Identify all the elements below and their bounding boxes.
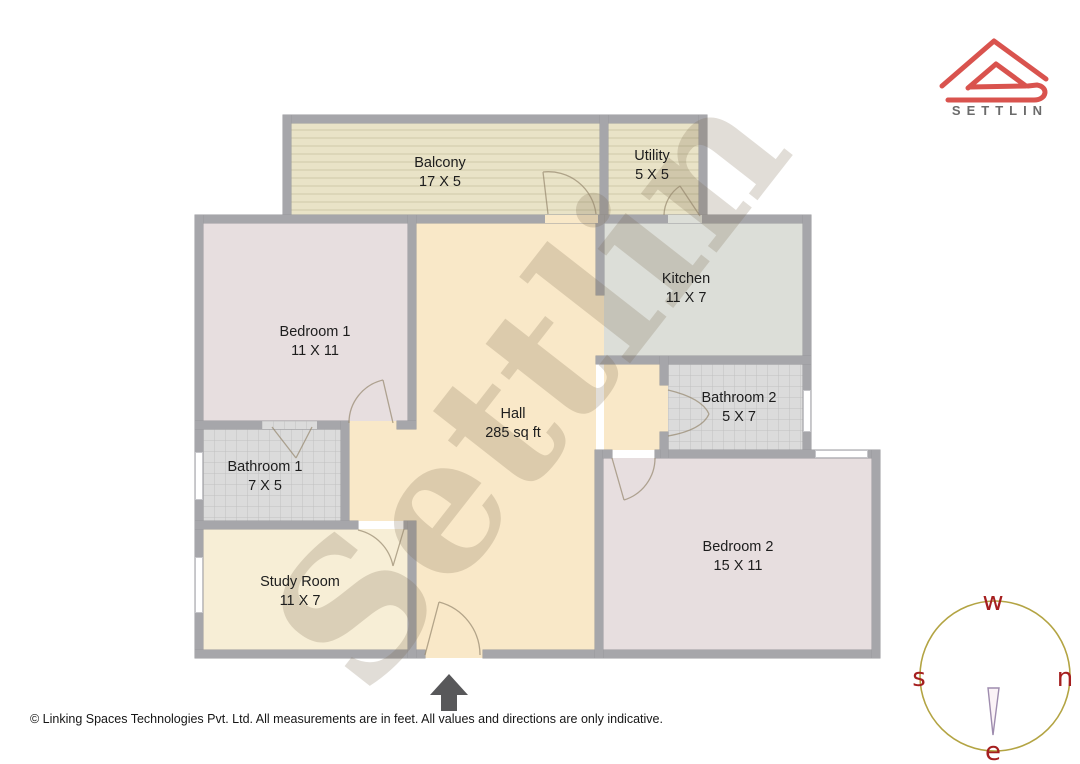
label-bedroom1: Bedroom 1 11 X 11 [280,323,351,361]
compass-west: w [982,588,1003,617]
window-marker [195,557,203,613]
wall-segment [699,115,707,223]
window-marker [803,390,811,432]
wall-segment [283,115,707,123]
door-opening-utility-kitchen [668,215,702,223]
label-study: Study Room 11 X 7 [260,573,340,611]
floor-plan-page: Settlin Balcony 17 X 5 Utility 5 X 5 Kit… [0,0,1080,764]
room-name: Bathroom 2 [702,390,777,406]
compass-east: e [985,737,1001,764]
door-opening-balcony-hall [545,215,598,223]
wall-segment [195,650,425,658]
room-name: Kitchen [662,271,710,287]
window-marker [195,452,203,500]
wall-segment [600,115,608,223]
footer-disclaimer: © Linking Spaces Technologies Pvt. Ltd. … [30,712,663,726]
room-dims: 17 X 5 [419,174,461,190]
label-hall: Hall 285 sq ft [485,405,541,443]
room-name: Hall [501,406,526,422]
compass-south: s [912,663,926,693]
label-utility: Utility 5 X 5 [634,147,669,185]
door-opening-bathroom1 [262,421,317,429]
wall-segment [195,521,358,529]
room-name: Bedroom 2 [703,539,774,555]
wall-segment [341,421,349,529]
wall-segment [283,115,291,223]
wall-segment [397,421,416,429]
room-name: Study Room [260,574,340,590]
label-kitchen: Kitchen 11 X 7 [662,270,710,308]
wall-segment [655,450,660,458]
room-dims: 5 X 7 [722,409,756,425]
wall-segment [603,450,612,458]
room-dims: 285 sq ft [485,425,541,441]
room-name: Balcony [414,155,466,171]
compass-north: n [1057,663,1073,693]
logo-roof-inner [968,64,1026,88]
room-name: Bedroom 1 [280,324,351,340]
room-hall-ext-east [604,364,668,450]
label-bedroom2: Bedroom 2 15 X 11 [703,538,774,576]
compass-needle-icon [988,688,999,735]
wall-segment [595,450,603,658]
label-bathroom1: Bathroom 1 7 X 5 [228,458,303,496]
room-name: Bathroom 1 [228,459,303,475]
wall-segment [408,215,416,429]
wall-segment [660,356,668,385]
wall-segment [408,521,416,658]
wall-segment [596,356,811,364]
label-bathroom2: Bathroom 2 5 X 7 [702,389,777,427]
compass-circle [920,601,1070,751]
room-hall-kitchen-opening [596,295,604,364]
room-dims: 15 X 11 [714,558,763,574]
settlin-logo: SETTLIN [930,28,1080,123]
label-balcony: Balcony 17 X 5 [414,154,466,192]
room-dims: 11 X 11 [291,343,339,359]
room-name: Utility [634,148,669,164]
entrance-arrow-icon [430,674,468,711]
wall-segment [596,215,604,295]
compass: w s n e [905,588,1080,764]
room-dims: 11 X 7 [280,593,321,609]
room-dims: 5 X 5 [635,167,669,183]
room-hall-ext-west [347,421,416,521]
room-dims: 11 X 7 [666,290,707,306]
wall-segment [660,432,668,458]
wall-segment [872,450,880,658]
room-dims: 7 X 5 [248,478,282,494]
logo-brand-text: SETTLIN [952,103,1048,118]
wall-segment [483,650,880,658]
window-marker [815,450,868,458]
wall-segment [195,215,811,223]
